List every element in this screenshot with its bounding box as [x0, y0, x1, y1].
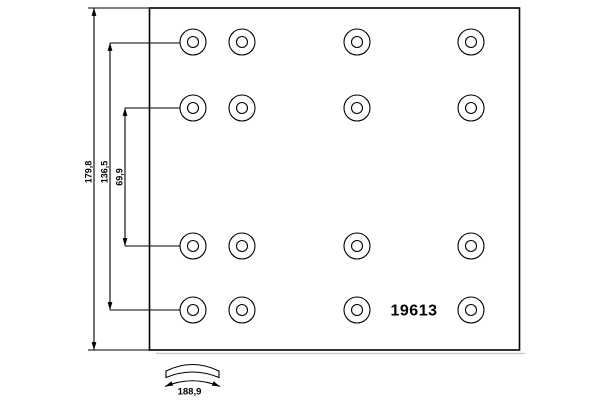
rivet-hole-inner: [466, 241, 477, 252]
rivet-hole-inner: [352, 37, 363, 48]
lining-curvature-symbol: [166, 365, 219, 378]
rivet-hole-inner: [466, 103, 477, 114]
rivet-hole-inner: [237, 103, 248, 114]
rivet-hole-inner: [237, 241, 248, 252]
dimension-label-inner-rows: 69,9: [115, 168, 125, 186]
rivet-hole-inner: [352, 241, 363, 252]
rivet-hole-inner: [466, 305, 477, 316]
rivet-hole-inner: [352, 305, 363, 316]
rivet-hole-inner: [188, 37, 199, 48]
rivet-hole-inner: [188, 241, 199, 252]
brake-lining-technical-drawing: 179,8 136,5 69,9 19613 188,9: [0, 0, 600, 400]
dimension-label-outer-rows: 136,5: [100, 161, 110, 184]
rivet-hole-inner: [237, 305, 248, 316]
rivet-hole-inner: [188, 305, 199, 316]
rivet-holes: [180, 29, 484, 323]
rivet-hole-inner: [237, 37, 248, 48]
dimension-label-arc-width: 188,9: [178, 387, 202, 398]
rivet-hole-inner: [466, 37, 477, 48]
rivet-hole-inner: [188, 103, 199, 114]
part-number: 19613: [391, 303, 438, 320]
dimension-label-overall-height: 179,8: [84, 161, 94, 184]
rivet-hole-inner: [352, 103, 363, 114]
